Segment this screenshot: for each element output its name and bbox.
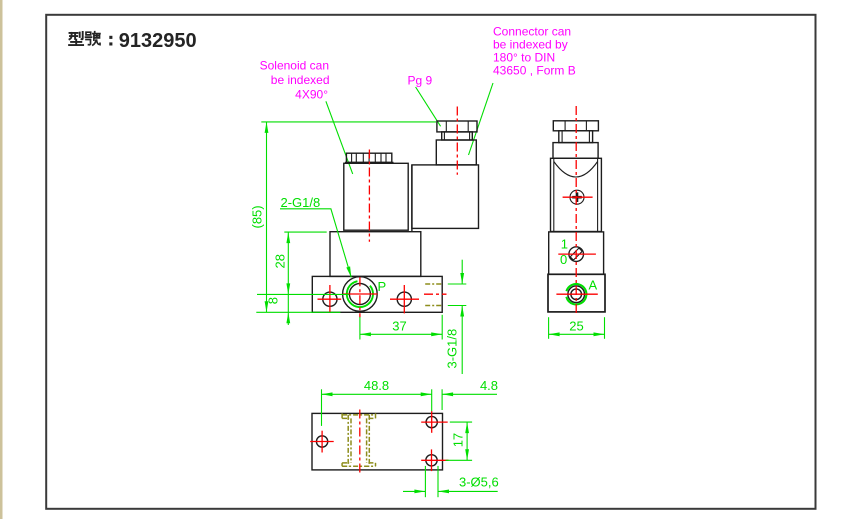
svg-text:4.8: 4.8 <box>480 378 498 393</box>
svg-text:Pg 9: Pg 9 <box>408 74 433 88</box>
svg-text:37: 37 <box>392 318 406 333</box>
svg-text:28: 28 <box>273 254 288 268</box>
svg-text:3-G1/8: 3-G1/8 <box>445 329 460 369</box>
svg-text:(85): (85) <box>250 205 265 228</box>
svg-text:180° to DIN: 180° to DIN <box>493 51 555 65</box>
svg-text:A: A <box>589 278 598 293</box>
svg-text:25: 25 <box>569 318 583 333</box>
svg-text:be indexed by: be indexed by <box>493 37 568 51</box>
svg-text:be indexed: be indexed <box>271 73 330 87</box>
svg-text:4X90°: 4X90° <box>295 88 328 102</box>
svg-text:Connector can: Connector can <box>493 24 571 38</box>
svg-text:2-G1/8: 2-G1/8 <box>281 195 321 210</box>
svg-text:P: P <box>378 279 387 294</box>
svg-text:9132950: 9132950 <box>119 30 197 52</box>
svg-text:8: 8 <box>265 297 280 304</box>
svg-text:1: 1 <box>561 237 568 252</box>
svg-text:48.8: 48.8 <box>364 378 389 393</box>
svg-text:43650 , Form B: 43650 , Form B <box>493 64 576 78</box>
svg-text:3-Ø5,6: 3-Ø5,6 <box>459 474 499 489</box>
svg-text:Solenoid can: Solenoid can <box>260 59 329 73</box>
svg-text:17: 17 <box>450 433 465 447</box>
